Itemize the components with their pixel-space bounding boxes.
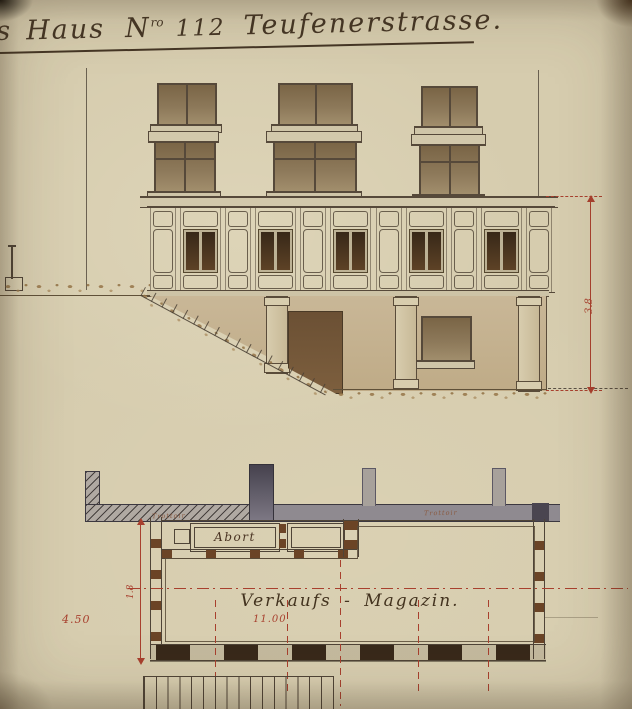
plan-room-annex <box>287 523 345 552</box>
plan-wall-stub-2 <box>362 468 376 506</box>
third-floor-window-left <box>157 83 217 128</box>
title-number-abbr-sup: ro <box>150 15 163 29</box>
main-window-right <box>419 144 480 198</box>
plan-room-abort: Abort <box>190 523 280 552</box>
plan-wall-bottom <box>150 644 546 661</box>
plan-room-inner-top-right <box>357 526 535 527</box>
shopfront-bay-window <box>180 208 221 292</box>
title-number-abbr: Nro <box>125 12 164 44</box>
plan-dim-label-depth: 4.50 <box>62 614 91 625</box>
plan-room-inner-right <box>534 526 535 642</box>
shopfront-base <box>147 290 549 297</box>
plan-pencil-line <box>545 617 598 618</box>
plan-annex-divider-wall <box>279 524 286 549</box>
ground-floor-pilaster-right <box>518 296 540 392</box>
shopfront-bay-panel <box>526 208 552 292</box>
plan-axis-tick <box>418 600 419 692</box>
shopfront-bay-panel <box>300 208 326 292</box>
main-window-left <box>154 141 216 195</box>
title-period: . <box>492 5 503 36</box>
third-floor-window-right <box>421 86 478 130</box>
plan-dim-arrow-top <box>137 518 145 525</box>
plan-dim-line-depth <box>140 521 141 661</box>
plan-room-inner-bottom <box>165 641 535 642</box>
dim-arrow-top <box>587 195 595 202</box>
shopfront-bay-panel <box>225 208 251 292</box>
elevation-left-corner-line <box>86 68 87 290</box>
shopfront-bay-window <box>481 208 522 292</box>
shopfront-bay-panel <box>376 208 402 292</box>
plan-abort-label: Abort <box>191 530 279 544</box>
boundary-marker-post <box>11 247 13 279</box>
ground-floor-pilaster-center <box>395 296 417 390</box>
shopfront-bay-window <box>255 208 296 292</box>
plan-wall-stub-dark <box>249 464 274 522</box>
terrain-right <box>333 389 547 401</box>
plan-center-line-horizontal <box>128 588 628 589</box>
title-block: s Haus Nro 112 Teufenerstrasse . <box>0 4 517 47</box>
third-floor-window-center <box>278 83 353 128</box>
plan-stairs-strip <box>143 676 334 709</box>
shopfront-bay-panel <box>150 208 176 292</box>
plan-center-line-vertical <box>340 560 341 706</box>
plan-dim-arrow-bottom <box>137 658 145 665</box>
elevation-right-corner-line <box>538 70 539 197</box>
shopfront-band <box>147 206 555 293</box>
plan-dim-label-center: 1.8 <box>126 579 138 599</box>
shopfront-bay-window <box>330 208 371 292</box>
plan-toilet-fixture <box>174 529 190 544</box>
ground-floor-window-sill <box>416 360 475 369</box>
ground-floor-wall <box>150 296 547 391</box>
terrain-left <box>0 281 150 296</box>
ground-floor-window <box>421 316 472 364</box>
title-street: Teufenerstrasse <box>243 5 493 42</box>
plan-wall-stub-3 <box>492 468 506 506</box>
title-word-haus: Haus <box>26 14 106 47</box>
main-window-center <box>273 141 357 195</box>
plan-axis-tick <box>488 600 489 692</box>
title-fragment: s <box>0 16 13 47</box>
plan-dim-label-width: 11.00 <box>253 615 287 625</box>
dim-arrow-bottom <box>587 387 595 394</box>
plan-room-inner-left <box>165 558 166 642</box>
title-house-number: 112 <box>175 15 225 42</box>
plan-room-label: Verkaufs - Magazin. <box>180 591 520 611</box>
plan-room-inner-step <box>357 526 358 559</box>
plan-wall-bottom-outer-line <box>150 661 546 662</box>
dim-label-height: 3.8 <box>584 292 598 314</box>
shopfront-bay-panel <box>451 208 477 292</box>
drawing-sheet: s Haus Nro 112 Teufenerstrasse . <box>0 0 632 709</box>
plan-room-inner-top-left <box>165 558 358 559</box>
plan-trottoir-label-right: Trottoir <box>424 509 458 518</box>
shopfront-bay-window <box>406 208 447 292</box>
